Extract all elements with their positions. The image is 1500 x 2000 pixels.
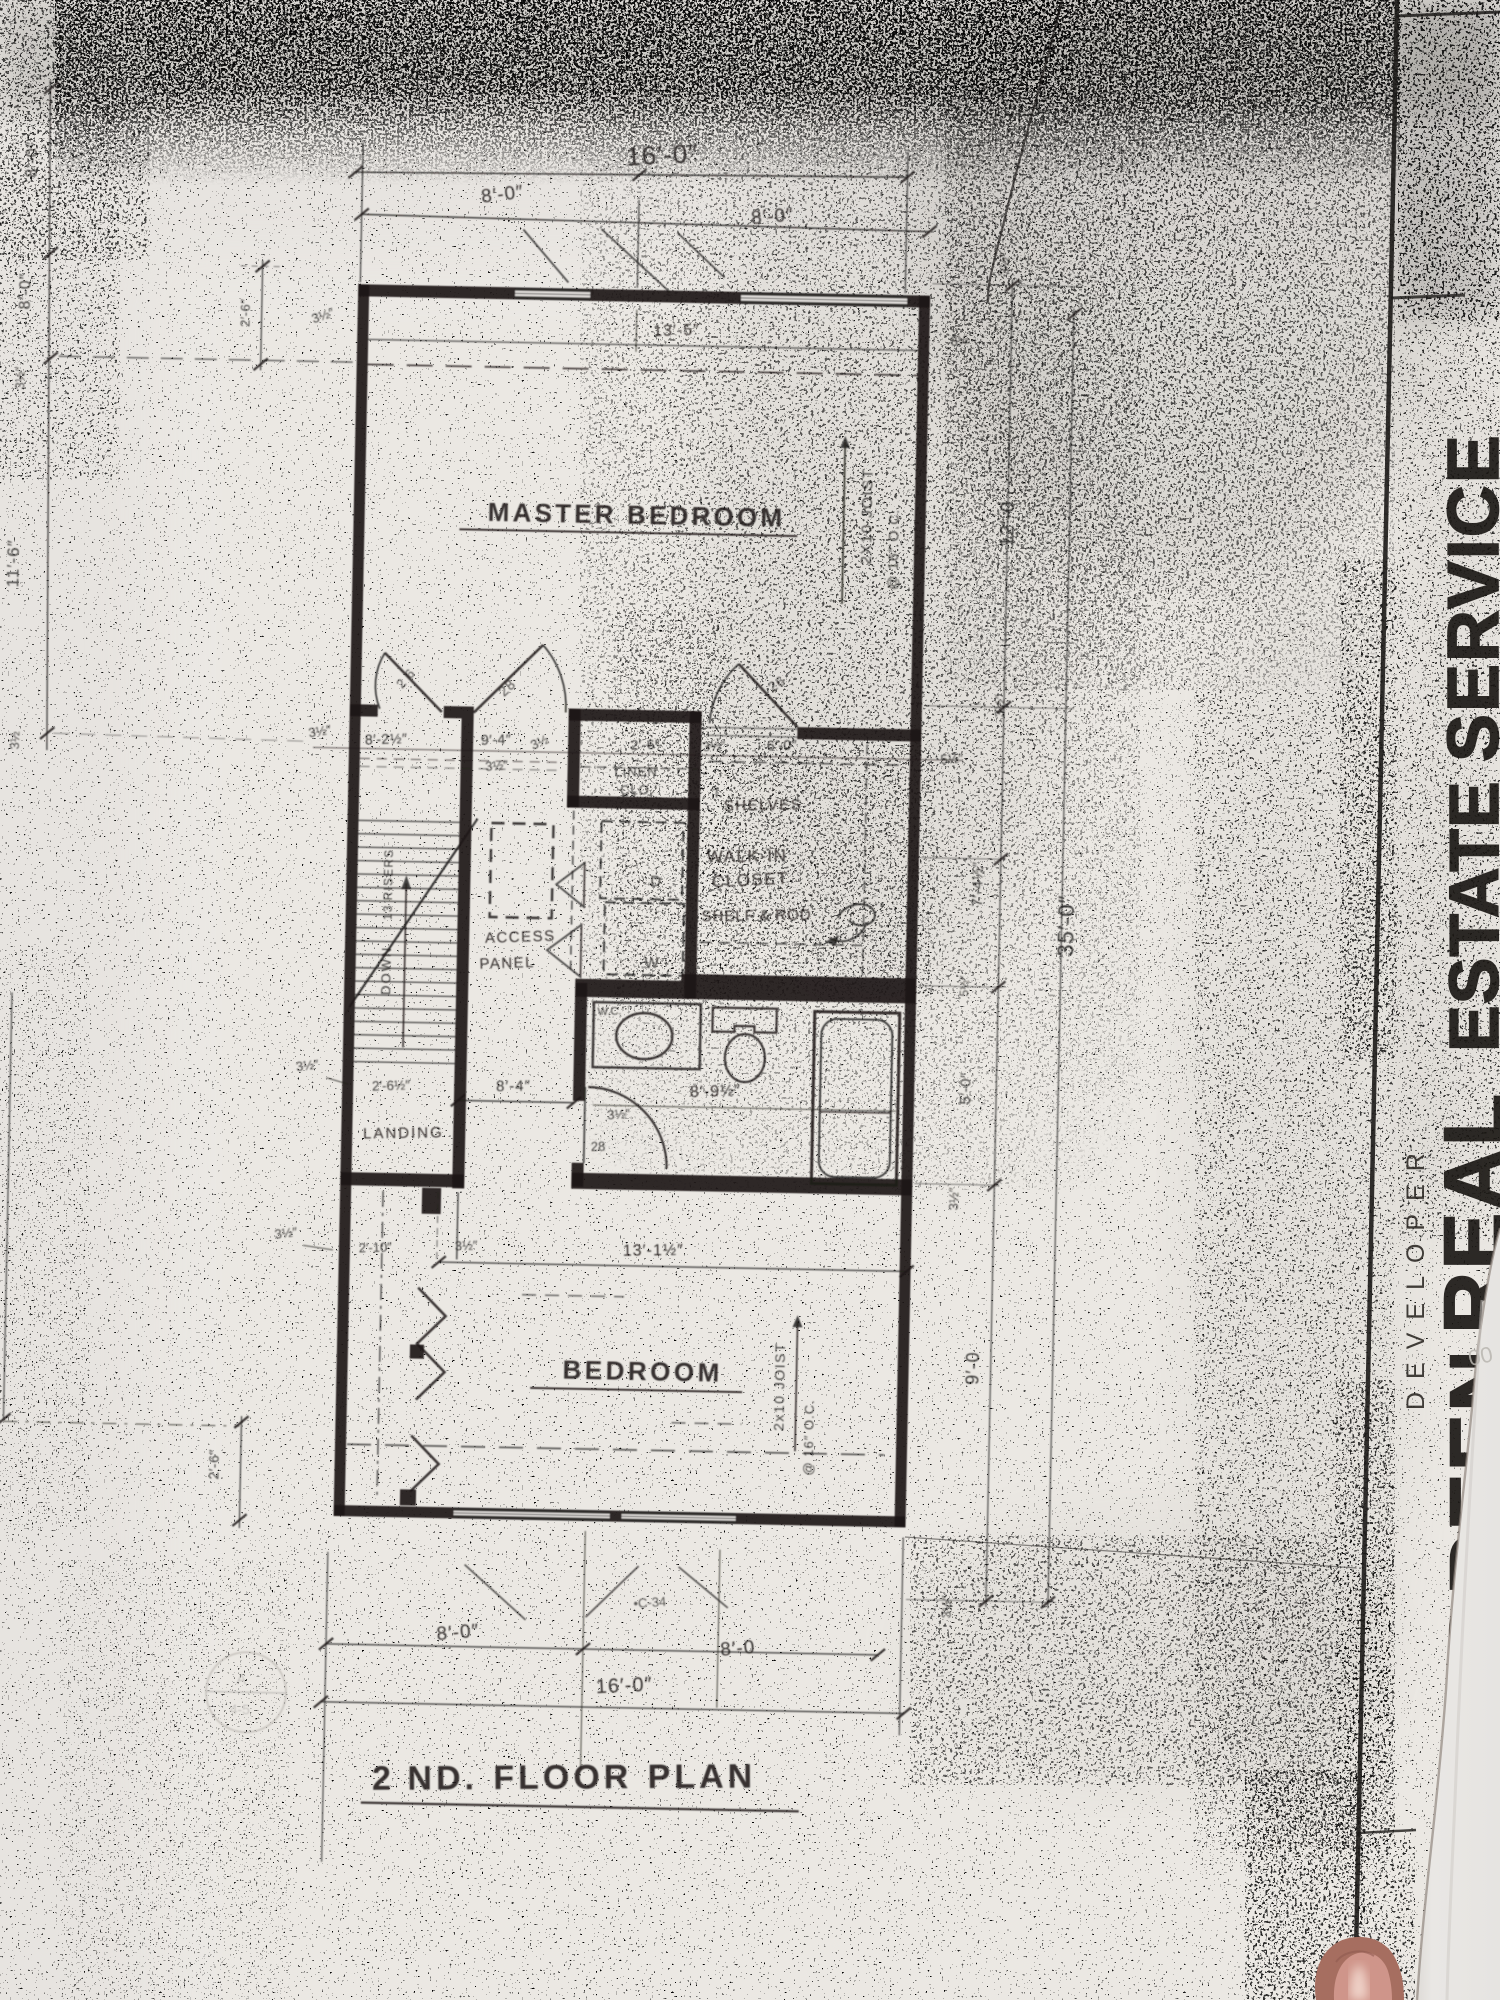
svg-text:8′-0″: 8′-0″ — [436, 1621, 480, 1646]
svg-text:PANEL: PANEL — [479, 954, 535, 973]
svg-text:00: 00 — [1466, 1341, 1495, 1371]
svg-text:8′-2½″: 8′-2½″ — [365, 730, 408, 747]
svg-text:W.C.: W.C. — [597, 1005, 621, 1018]
svg-text:CLO.′: CLO.′ — [620, 782, 658, 798]
svg-text:8′-0″: 8′-0″ — [17, 273, 35, 310]
svg-text:5½″: 5½″ — [940, 750, 964, 767]
svg-text:13 RISERS: 13 RISERS — [383, 848, 396, 920]
svg-text:2′-6″: 2′-6″ — [237, 298, 253, 327]
svg-text:3½″: 3½″ — [485, 757, 509, 774]
svg-text:3½: 3½ — [7, 731, 22, 750]
svg-text:3½: 3½ — [949, 331, 969, 349]
svg-text:2x10 JOIST: 2x10 JOIST — [770, 1342, 788, 1431]
svg-text:SHELVES: SHELVES — [724, 796, 803, 814]
svg-text:LANDING: LANDING — [363, 1124, 444, 1142]
svg-text:MASTER BEDROOM: MASTER BEDROOM — [487, 497, 785, 533]
svg-text:A: A — [236, 1671, 246, 1688]
svg-text:W: W — [644, 955, 659, 972]
svg-text:16′-0″: 16′-0″ — [626, 138, 700, 172]
svg-text:2′-6½″: 2′-6½″ — [372, 1077, 411, 1093]
svg-text:6′-0″: 6′-0″ — [767, 737, 798, 754]
svg-text:4-5: 4-5 — [230, 1701, 251, 1717]
svg-text:WALK-IN: WALK-IN — [707, 846, 788, 866]
svg-text:3½″: 3½″ — [455, 1238, 479, 1254]
svg-text:13′-1½″: 13′-1½″ — [623, 1242, 684, 1260]
svg-text:8′-0″: 8′-0″ — [750, 205, 794, 230]
svg-text:5½″: 5½″ — [957, 975, 971, 997]
svg-text:3½″: 3½″ — [939, 1595, 954, 1618]
svg-text:5′-0″: 5′-0″ — [957, 1072, 975, 1105]
svg-text:BEDROOM: BEDROOM — [562, 1355, 723, 1388]
svg-text:12′-0: 12′-0 — [997, 501, 1019, 548]
svg-text:3½″: 3½″ — [295, 1056, 320, 1074]
svg-text:8′-0: 8′-0 — [719, 1637, 756, 1661]
svg-text:7′-4½″: 7′-4½″ — [969, 861, 987, 907]
svg-text:SERVICE: SERVICE — [1434, 433, 1500, 762]
svg-text:3½″: 3½″ — [12, 366, 27, 389]
svg-text:35′-0″: 35′-0″ — [1053, 894, 1079, 956]
svg-text:3½″: 3½″ — [607, 1106, 631, 1123]
svg-text:@ 16″ O.C.: @ 16″ O.C. — [884, 509, 902, 591]
svg-text:9′-0: 9′-0 — [962, 1351, 983, 1385]
svg-text:•C-34: •C-34 — [633, 1594, 667, 1611]
svg-text:ESTATE: ESTATE — [1435, 780, 1500, 1052]
svg-text:9′-4″: 9′-4″ — [481, 731, 512, 748]
svg-text:3½″: 3½″ — [997, 252, 1012, 275]
svg-text:SHELF & ROD: SHELF & ROD — [701, 907, 811, 926]
svg-text:D: D — [650, 873, 661, 890]
svg-text:13′-5″: 13′-5″ — [653, 322, 700, 340]
svg-text:2 ND. FLOOR PLAN: 2 ND. FLOOR PLAN — [372, 1757, 756, 1797]
svg-text:2X10 JOIST: 2X10 JOIST — [858, 468, 877, 565]
svg-text:8′-4″: 8′-4″ — [496, 1078, 531, 1096]
svg-text:DOWN: DOWN — [378, 946, 394, 995]
svg-text:16′-0″: 16′-0″ — [595, 1673, 653, 1698]
svg-text:2′-6″: 2′-6″ — [205, 1449, 222, 1480]
svg-text:3½″: 3½″ — [946, 1187, 961, 1210]
svg-text:ACCESS: ACCESS — [485, 928, 556, 947]
svg-text:3½″: 3½″ — [992, 694, 1007, 717]
svg-text:8′-0″: 8′-0″ — [23, 141, 41, 178]
svg-text:11′-6″: 11′-6″ — [3, 539, 23, 587]
svg-text:3½″: 3½″ — [274, 1224, 299, 1242]
svg-text:2′-10″: 2′-10″ — [358, 1239, 392, 1255]
svg-text:8′-9½″: 8′-9½″ — [690, 1082, 742, 1101]
svg-text:DEVELOPER: DEVELOPER — [1402, 1140, 1430, 1410]
svg-text:2′-6″: 2′-6″ — [631, 737, 661, 753]
svg-text:28: 28 — [591, 1139, 606, 1154]
svg-text:LINEN: LINEN — [614, 764, 658, 780]
svg-text:3½″: 3½″ — [702, 738, 726, 755]
svg-text:@ 16″ O.C.: @ 16″ O.C. — [800, 1399, 817, 1476]
svg-text:CLOSET: CLOSET — [712, 869, 790, 892]
